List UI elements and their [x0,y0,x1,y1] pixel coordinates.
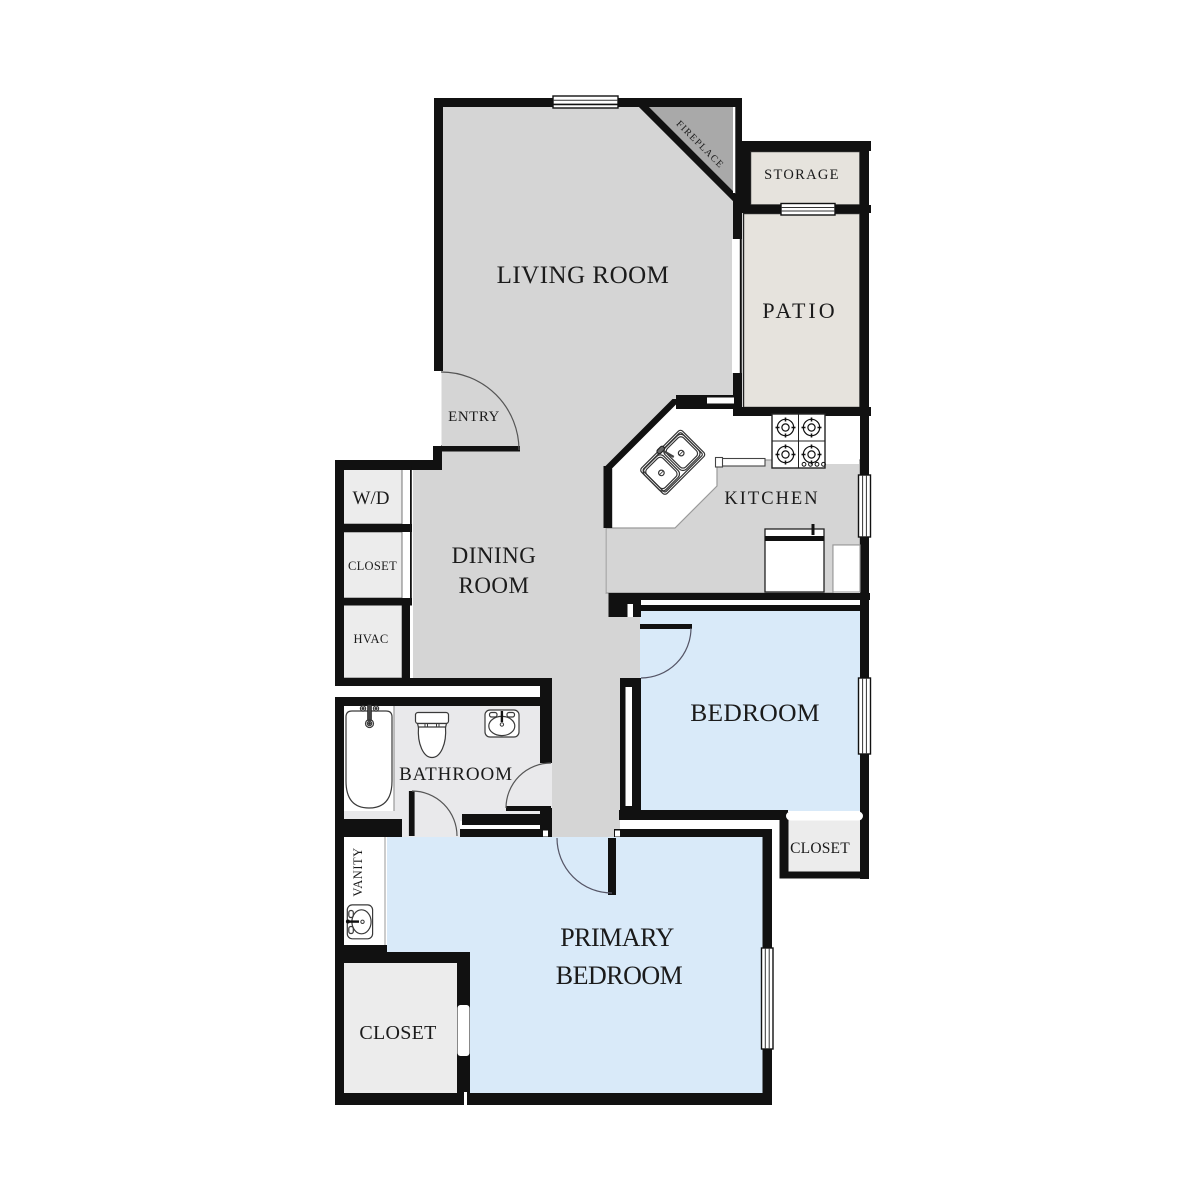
svg-text:ROOM: ROOM [458,573,529,598]
svg-text:CLOSET: CLOSET [790,840,850,857]
svg-text:KITCHEN: KITCHEN [724,489,819,509]
svg-text:LIVING ROOM: LIVING ROOM [497,262,670,289]
svg-text:W/D: W/D [353,488,390,509]
svg-text:VANITY: VANITY [351,847,365,896]
svg-text:BEDROOM: BEDROOM [556,961,683,990]
svg-text:ENTRY: ENTRY [448,409,500,425]
svg-text:DINING: DINING [452,543,537,568]
svg-text:HVAC: HVAC [353,632,388,646]
svg-text:PATIO: PATIO [762,298,837,323]
svg-text:STORAGE: STORAGE [764,167,840,183]
svg-text:CLOSET: CLOSET [348,559,397,573]
svg-text:BATHROOM: BATHROOM [399,764,513,785]
svg-text:PRIMARY: PRIMARY [560,923,674,952]
svg-text:CLOSET: CLOSET [359,1022,436,1044]
svg-text:BEDROOM: BEDROOM [690,698,820,727]
